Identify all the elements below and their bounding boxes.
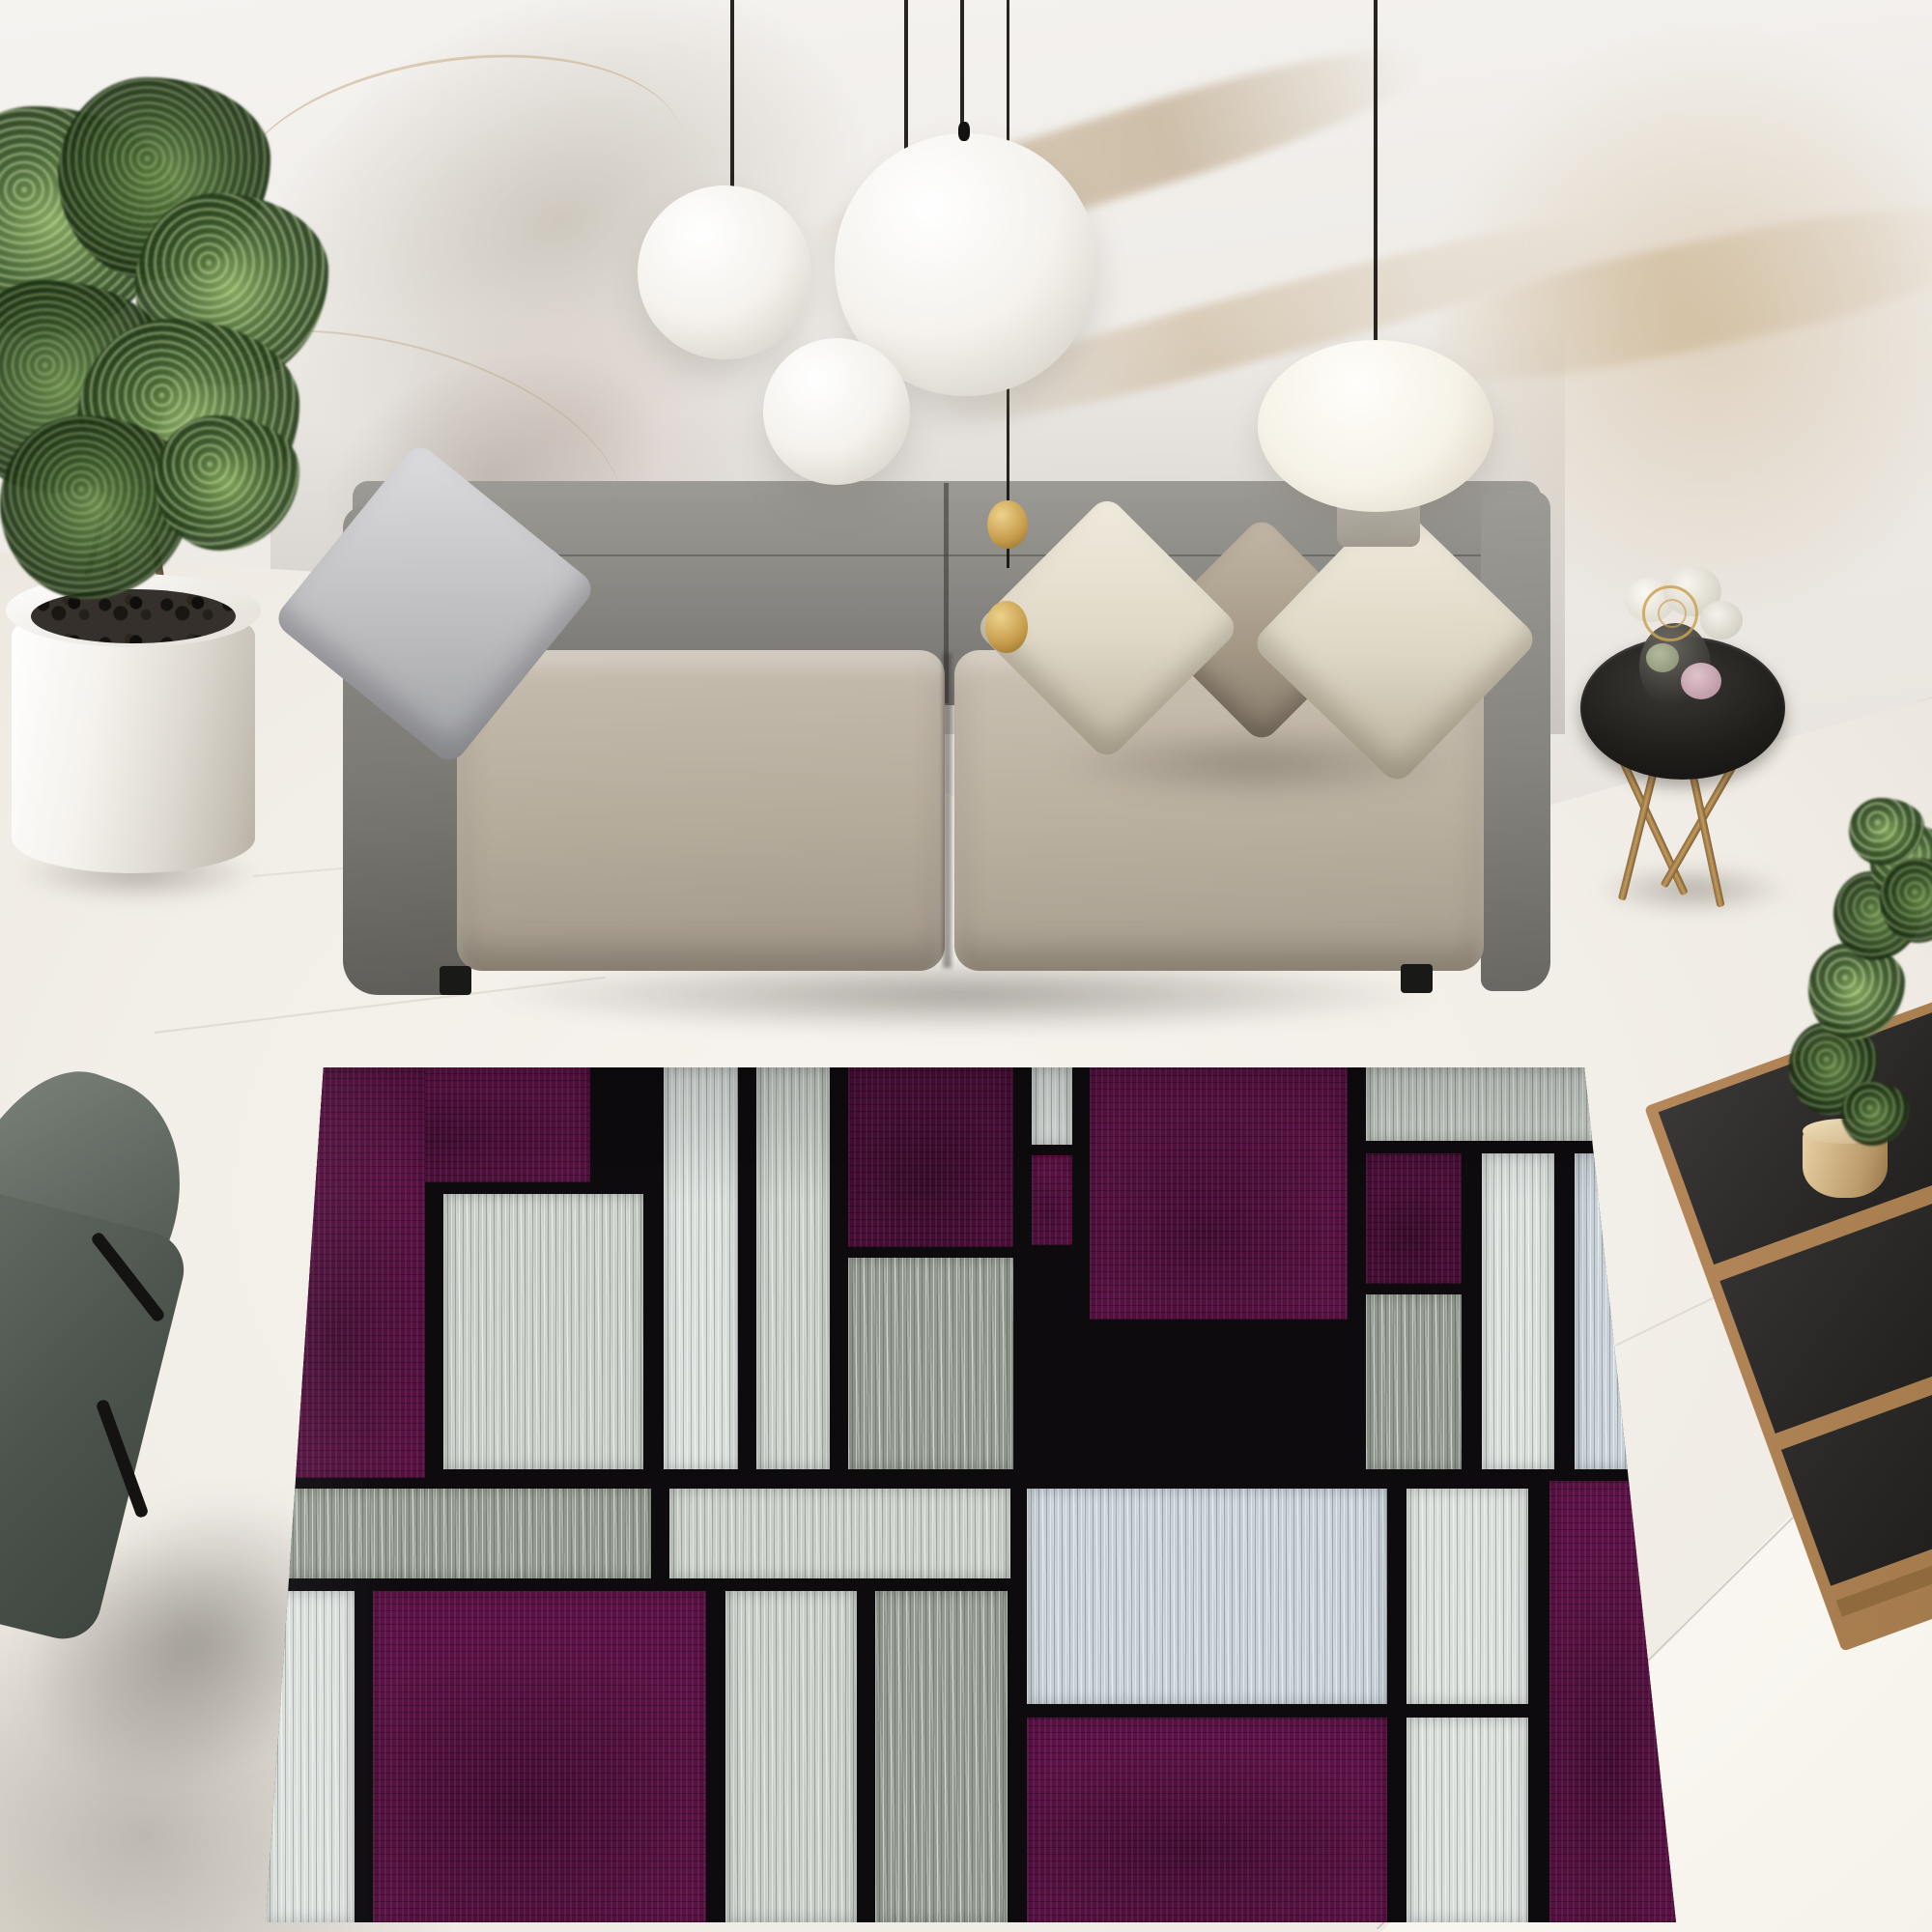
rug-block-p-8 <box>1032 1155 1072 1245</box>
dome-pendant-lamp <box>1258 340 1493 512</box>
area-rug <box>266 1067 1676 1922</box>
living-room-photo <box>0 0 1932 1932</box>
sofa-seat-cushion-left <box>457 650 945 971</box>
rug-block-m-6 <box>848 1258 1013 1469</box>
rug-block-s-16 <box>669 1489 1010 1578</box>
rug-block-s2-7 <box>1032 1067 1072 1145</box>
rug-block-p-9 <box>1090 1067 1348 1320</box>
rug-block-m-15 <box>266 1489 651 1578</box>
pendant-cord <box>960 0 964 135</box>
rug-block-p2-5 <box>848 1067 1013 1247</box>
rug-block-s-22 <box>725 1591 857 1922</box>
side-table-shadow <box>1571 858 1814 922</box>
rug-block-l-17 <box>1027 1489 1386 1704</box>
pendant-cord-cap <box>958 122 970 141</box>
sofa-leg <box>1401 964 1433 993</box>
rug-block-s-2 <box>443 1194 643 1469</box>
sofa-armrest-right <box>1481 491 1550 991</box>
sofa-seat-gap <box>943 653 952 968</box>
green-sprig <box>1646 643 1679 672</box>
white-flower <box>1700 601 1743 639</box>
globe-pendant-small <box>763 338 910 485</box>
gold-bead <box>987 500 1028 549</box>
rug-block-m-12 <box>1366 1294 1462 1469</box>
gold-bead <box>985 601 1028 653</box>
rug-block-p-24 <box>1027 1718 1386 1922</box>
rug-block-s2-25 <box>1406 1718 1528 1922</box>
rug-pattern <box>266 1067 1676 1922</box>
globe-pendant-medium <box>638 185 811 359</box>
rug-block-p2-11 <box>1366 1153 1462 1284</box>
sofa-leg <box>440 966 471 995</box>
rug-block-s2-3 <box>664 1067 738 1469</box>
pink-flower <box>1681 663 1721 699</box>
rug-block-s2-13 <box>1482 1153 1555 1469</box>
pendant-cord <box>1374 0 1378 344</box>
rug-block-s2-18 <box>1406 1489 1528 1704</box>
planter-pebbles <box>31 589 236 643</box>
rug-block-m-23 <box>875 1591 1008 1922</box>
pendant-cord <box>730 0 734 189</box>
gold-wire-ornament-inner <box>1658 599 1687 628</box>
rug-block-p-21 <box>373 1591 706 1922</box>
rug-block-s-4 <box>756 1067 830 1469</box>
